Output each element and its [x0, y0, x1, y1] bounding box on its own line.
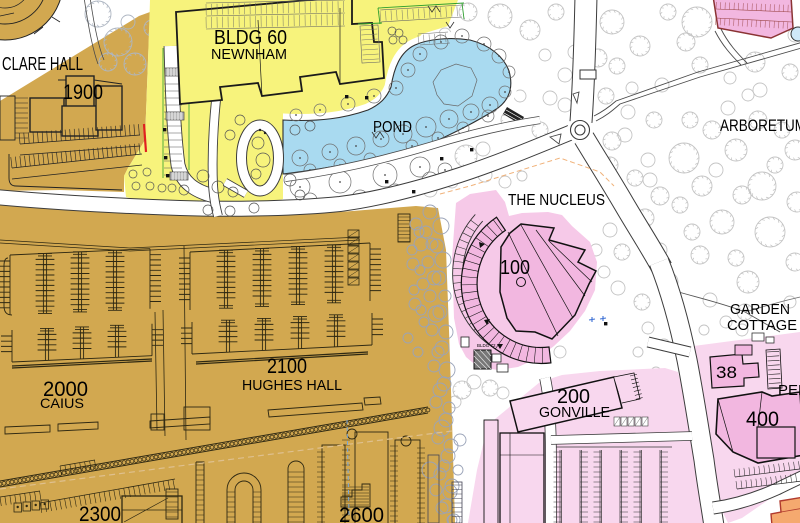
- svg-text:THE NUCLEUS: THE NUCLEUS: [508, 192, 605, 209]
- svg-text:400: 400: [746, 408, 779, 431]
- svg-text:CAIUS: CAIUS: [40, 395, 84, 411]
- svg-text:BLDG 72: BLDG 72: [477, 343, 496, 348]
- svg-text:38: 38: [716, 363, 737, 382]
- svg-text:2300: 2300: [79, 503, 121, 523]
- svg-text:COTTAGE: COTTAGE: [727, 317, 797, 334]
- svg-text:POND: POND: [373, 119, 412, 136]
- svg-text:2100: 2100: [267, 355, 307, 378]
- svg-text:1900: 1900: [63, 81, 103, 104]
- svg-text:NEWNHAM: NEWNHAM: [211, 46, 287, 63]
- svg-text:GONVILLE: GONVILLE: [539, 404, 610, 421]
- svg-text:100: 100: [500, 257, 530, 279]
- svg-text:HUGHES HALL: HUGHES HALL: [242, 378, 342, 394]
- svg-text:ARBORETUM: ARBORETUM: [720, 116, 800, 135]
- svg-text:PEM: PEM: [778, 382, 800, 399]
- svg-text:2600: 2600: [339, 504, 384, 523]
- svg-text:CLARE HALL: CLARE HALL: [2, 54, 83, 74]
- svg-text:GARDEN: GARDEN: [730, 301, 790, 318]
